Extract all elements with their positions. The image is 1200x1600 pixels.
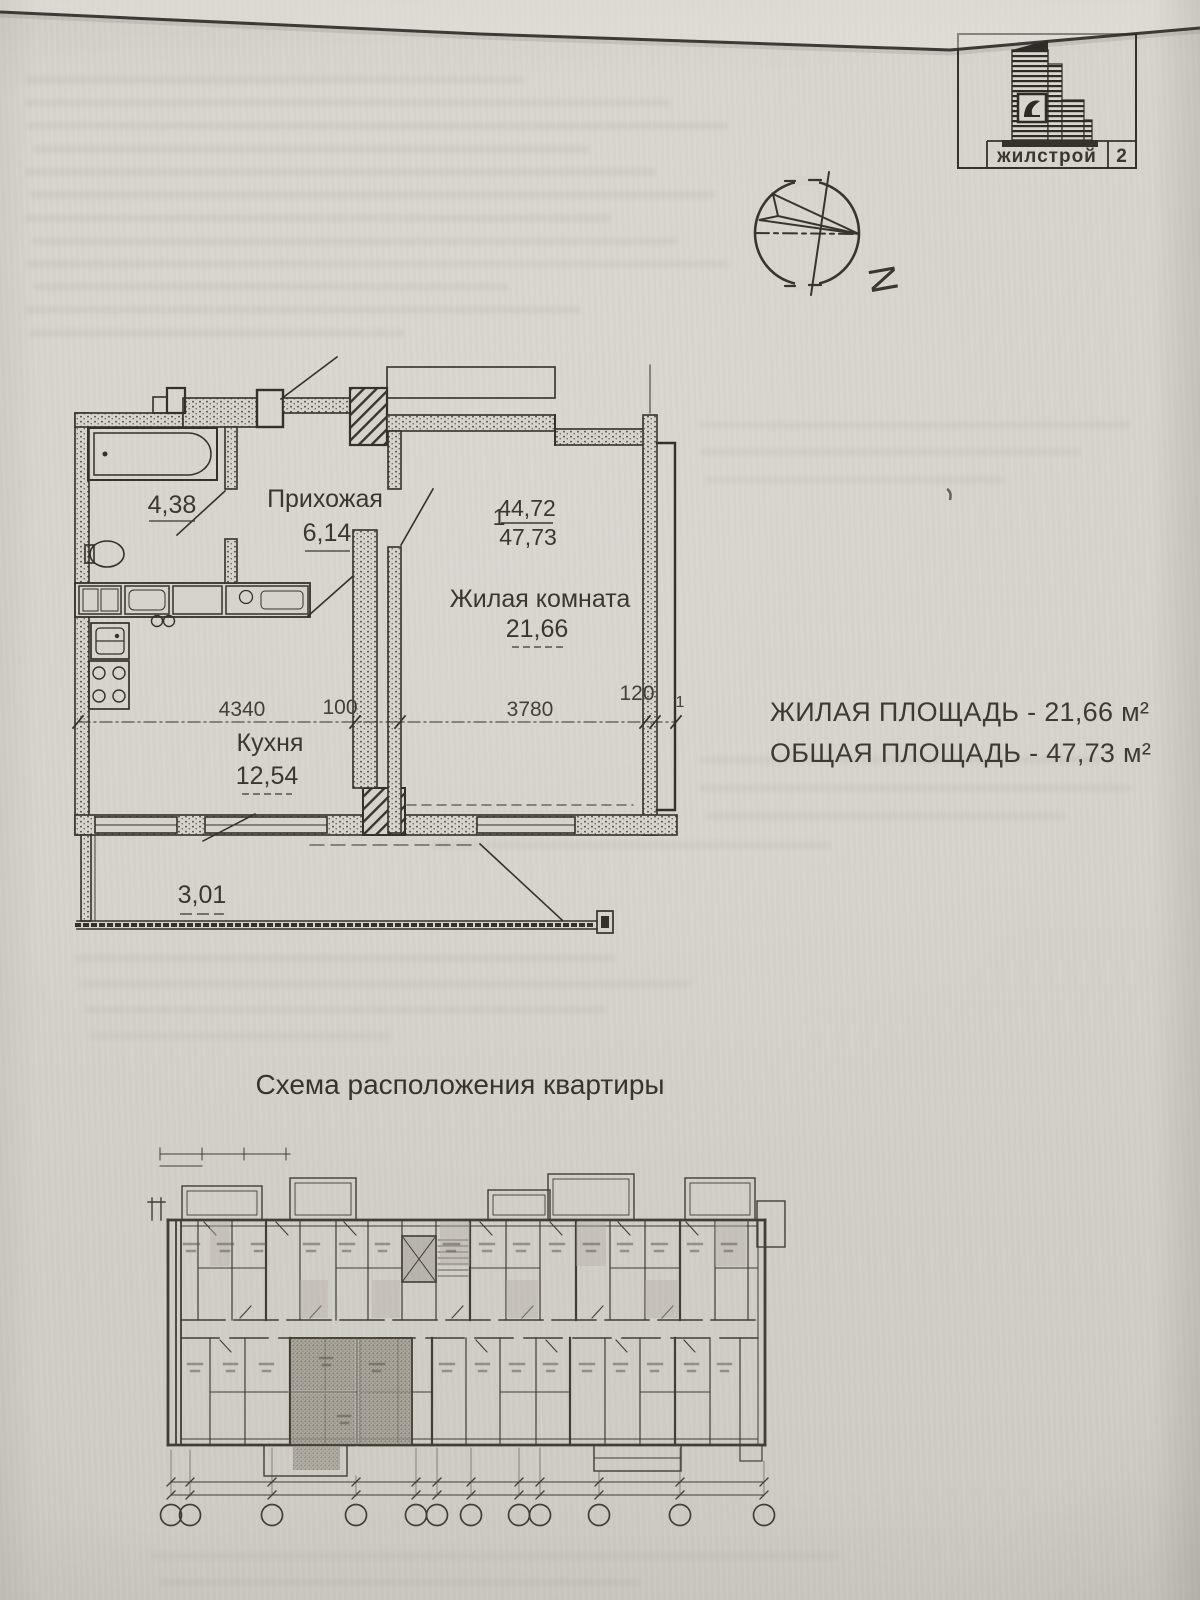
scheme-balconies <box>182 1174 785 1247</box>
dim-living-width: 3780 <box>507 698 554 721</box>
living-room-name-label: Жилая комната <box>450 585 631 613</box>
stove-icon <box>89 661 129 709</box>
bathtub-icon <box>88 428 217 480</box>
dim-axis-mark: 1 <box>676 694 685 711</box>
logo-building-icon <box>1002 40 1098 147</box>
hallway-name-label: Прихожая <box>267 485 383 513</box>
balcony-area-label: 3,01 <box>178 881 227 909</box>
area-summary: ЖИЛАЯ ПЛОЩАДЬ - 21,66 м² ОБЩАЯ ПЛОЩАДЬ -… <box>770 692 1200 774</box>
highlighted-apartment <box>290 1338 412 1470</box>
location-scheme-title: Схема расположения квартиры <box>230 1069 690 1101</box>
living-area-fraction-top: 44,72 <box>498 495 556 521</box>
total-area-summary-line: ОБЩАЯ ПЛОЩАДЬ - 47,73 м² <box>770 733 1200 774</box>
scanned-document-page: жилстрой 2 N <box>0 0 1200 1600</box>
logo-company-name: жилстрой <box>996 146 1097 167</box>
bathroom-area-label: 4,38 <box>148 491 197 519</box>
dim-kitchen-width: 4340 <box>219 698 266 721</box>
total-area-fraction-bottom: 47,73 <box>499 524 557 550</box>
kitchen-sink-icon <box>91 623 129 659</box>
north-compass-icon: N <box>740 158 910 318</box>
dim-wall: 120 <box>619 682 654 705</box>
axis-circles <box>161 1505 775 1526</box>
kitchen-area-label: 12,54 <box>236 762 299 790</box>
living-area-summary-line: ЖИЛАЯ ПЛОЩАДЬ - 21,66 м² <box>770 692 1200 733</box>
building-location-scheme <box>140 1140 800 1560</box>
plan-walls <box>73 357 681 933</box>
logo-block-number: 2 <box>1116 146 1128 167</box>
kitchen-name-label: Кухня <box>237 729 304 757</box>
apartment-floor-plan: 4,38 Прихожая 6,14 1 44,72 47,73 Жилая к… <box>65 355 685 947</box>
toilet-icon <box>85 541 124 567</box>
document-content: жилстрой 2 N <box>0 0 1200 1600</box>
developer-logo: жилстрой 2 <box>950 20 1150 180</box>
dim-partition: 100 <box>322 696 357 719</box>
living-room-area-label: 21,66 <box>506 615 569 643</box>
north-label: N <box>859 262 905 296</box>
hallway-area-label: 6,14 <box>303 519 352 547</box>
